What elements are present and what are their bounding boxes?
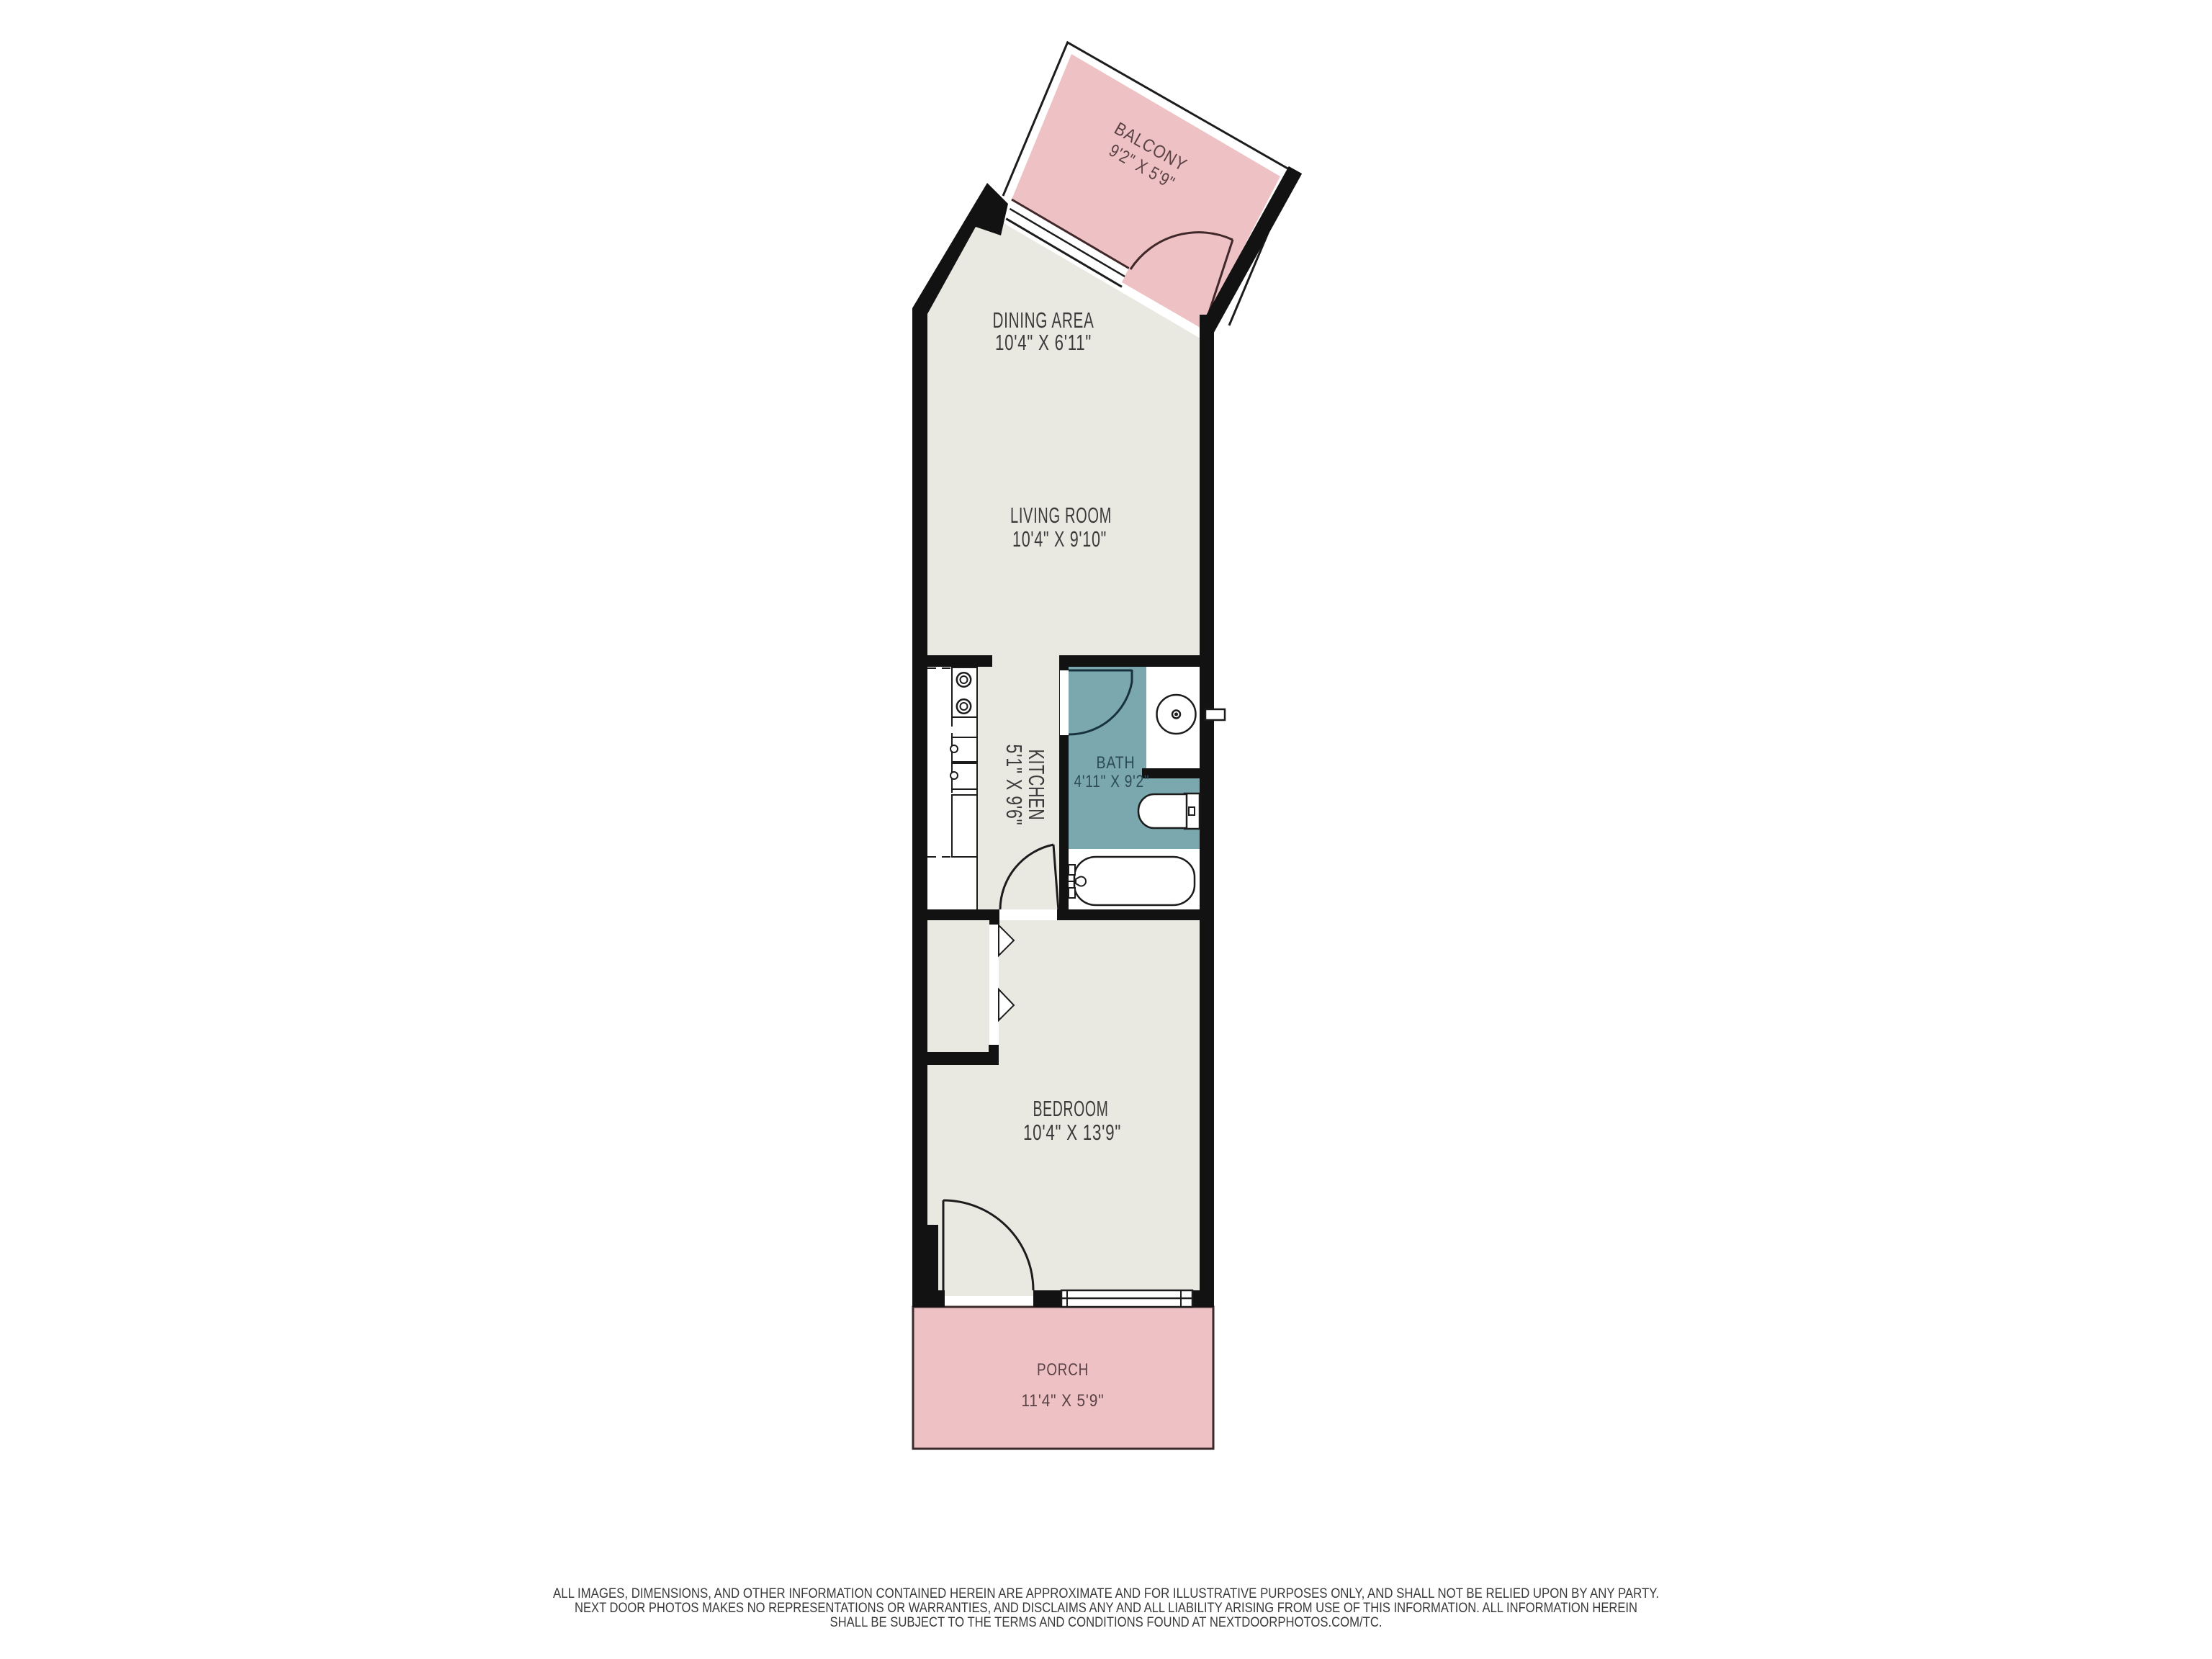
svg-text:BATH: BATH xyxy=(1097,753,1136,773)
svg-text:10'4" X 6'11": 10'4" X 6'11" xyxy=(995,330,1092,355)
svg-text:10'4" X 13'9": 10'4" X 13'9" xyxy=(1023,1120,1121,1145)
svg-text:PORCH: PORCH xyxy=(1037,1360,1089,1380)
svg-text:11'4" X 5'9": 11'4" X 5'9" xyxy=(1022,1391,1105,1411)
svg-text:ALL IMAGES, DIMENSIONS, AND OT: ALL IMAGES, DIMENSIONS, AND OTHER INFORM… xyxy=(553,1586,1659,1601)
svg-text:BEDROOM: BEDROOM xyxy=(1033,1096,1109,1121)
svg-text:KITCHEN: KITCHEN xyxy=(1024,750,1049,821)
svg-text:NEXT DOOR PHOTOS MAKES NO REPR: NEXT DOOR PHOTOS MAKES NO REPRESENTATION… xyxy=(575,1601,1637,1616)
svg-text:LIVING ROOM: LIVING ROOM xyxy=(1010,503,1112,528)
svg-text:SHALL BE SUBJECT TO THE TERMS: SHALL BE SUBJECT TO THE TERMS AND CONDIT… xyxy=(830,1615,1382,1630)
svg-text:5'1" X 9'6": 5'1" X 9'6" xyxy=(1002,745,1027,826)
svg-text:10'4" X 9'10": 10'4" X 9'10" xyxy=(1012,526,1107,552)
svg-text:4'11" X 9'2": 4'11" X 9'2" xyxy=(1074,772,1150,791)
svg-text:DINING AREA: DINING AREA xyxy=(993,307,1094,333)
